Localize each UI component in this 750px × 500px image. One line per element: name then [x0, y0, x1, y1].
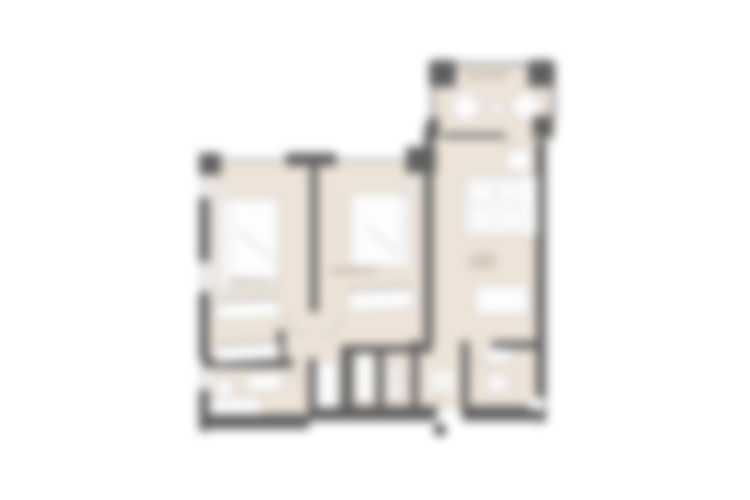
powder-sink [484, 348, 512, 362]
wall-bath-b-hall [411, 340, 419, 410]
powder-toilet [486, 374, 508, 392]
bedroom1-dresser [216, 297, 281, 320]
corner-service-notch [530, 398, 544, 410]
shower-closet-1 [316, 362, 338, 408]
balcony-railing-top [456, 62, 528, 66]
bedroom2-wardrobe [347, 286, 414, 311]
bedroom2-pillow-2 [401, 228, 410, 256]
bedroom1-nightstand-bottom [217, 287, 230, 296]
balcony-column-top-left [429, 60, 456, 87]
kitchen-sink-unit [506, 149, 532, 172]
wall-bedroom2-living [424, 127, 433, 345]
bedroom1-label: BEDROOM 1 [225, 277, 285, 285]
kitchen-appliance-4 [500, 208, 526, 228]
dining-table [474, 284, 529, 316]
wall-hall-powder [461, 341, 469, 411]
balcony-threshold-wall [443, 133, 505, 138]
living-label: LIVING DINING [461, 254, 505, 270]
entry-marker-dot [434, 424, 446, 436]
bedroom2-nightstand [404, 184, 416, 192]
window-top-bedroom1 [221, 158, 288, 162]
wall-mid-2 [376, 345, 384, 410]
balcony-column-top-right [528, 60, 555, 87]
balcony-pier-bottom-right [533, 116, 553, 138]
window-left-2-glass [202, 262, 205, 292]
floor-plan: BALCONY BEDROOM 1 BE [0, 0, 750, 500]
balcony-table [490, 102, 504, 116]
bedroom2-pillow-1 [401, 196, 410, 224]
floor-plan-page: BALCONY BEDROOM 1 BE [0, 0, 750, 500]
bedroom1-wardrobe [214, 341, 281, 362]
window-top-bedroom2 [336, 158, 406, 162]
kitchen-appliance-2 [498, 182, 518, 202]
bedroom1-nightstand-top [217, 188, 230, 197]
bedroom1-pillow-1 [220, 205, 231, 237]
wall-mid-1 [341, 345, 353, 410]
bathroom-a-toilet [215, 379, 233, 398]
wall-bedroom1-bedroom2 [310, 160, 318, 312]
wall-corner-top-left [199, 153, 221, 175]
kitchen-appliance-3 [470, 206, 492, 230]
shower-closet-2 [356, 354, 374, 402]
wall-bottom-left [199, 414, 309, 429]
bathroom-b-sink [385, 370, 402, 381]
living-label-line1: LIVING [470, 254, 496, 261]
balcony-label: BALCONY [459, 72, 517, 80]
kitchen-appliance-1 [468, 182, 494, 202]
balcony-railing-left [431, 87, 435, 122]
bathroom-b-toilet [387, 383, 402, 396]
living-label-line2: DINING [469, 262, 496, 269]
bedroom1-pillow-2 [220, 243, 231, 275]
window-left-1-glass [202, 172, 205, 198]
bedroom2-label: BEDROOM 2 [325, 267, 385, 275]
bathroom-a-sink [246, 372, 284, 392]
bathroom-a-bathtub [209, 398, 262, 415]
hall-cabinet [431, 371, 456, 392]
